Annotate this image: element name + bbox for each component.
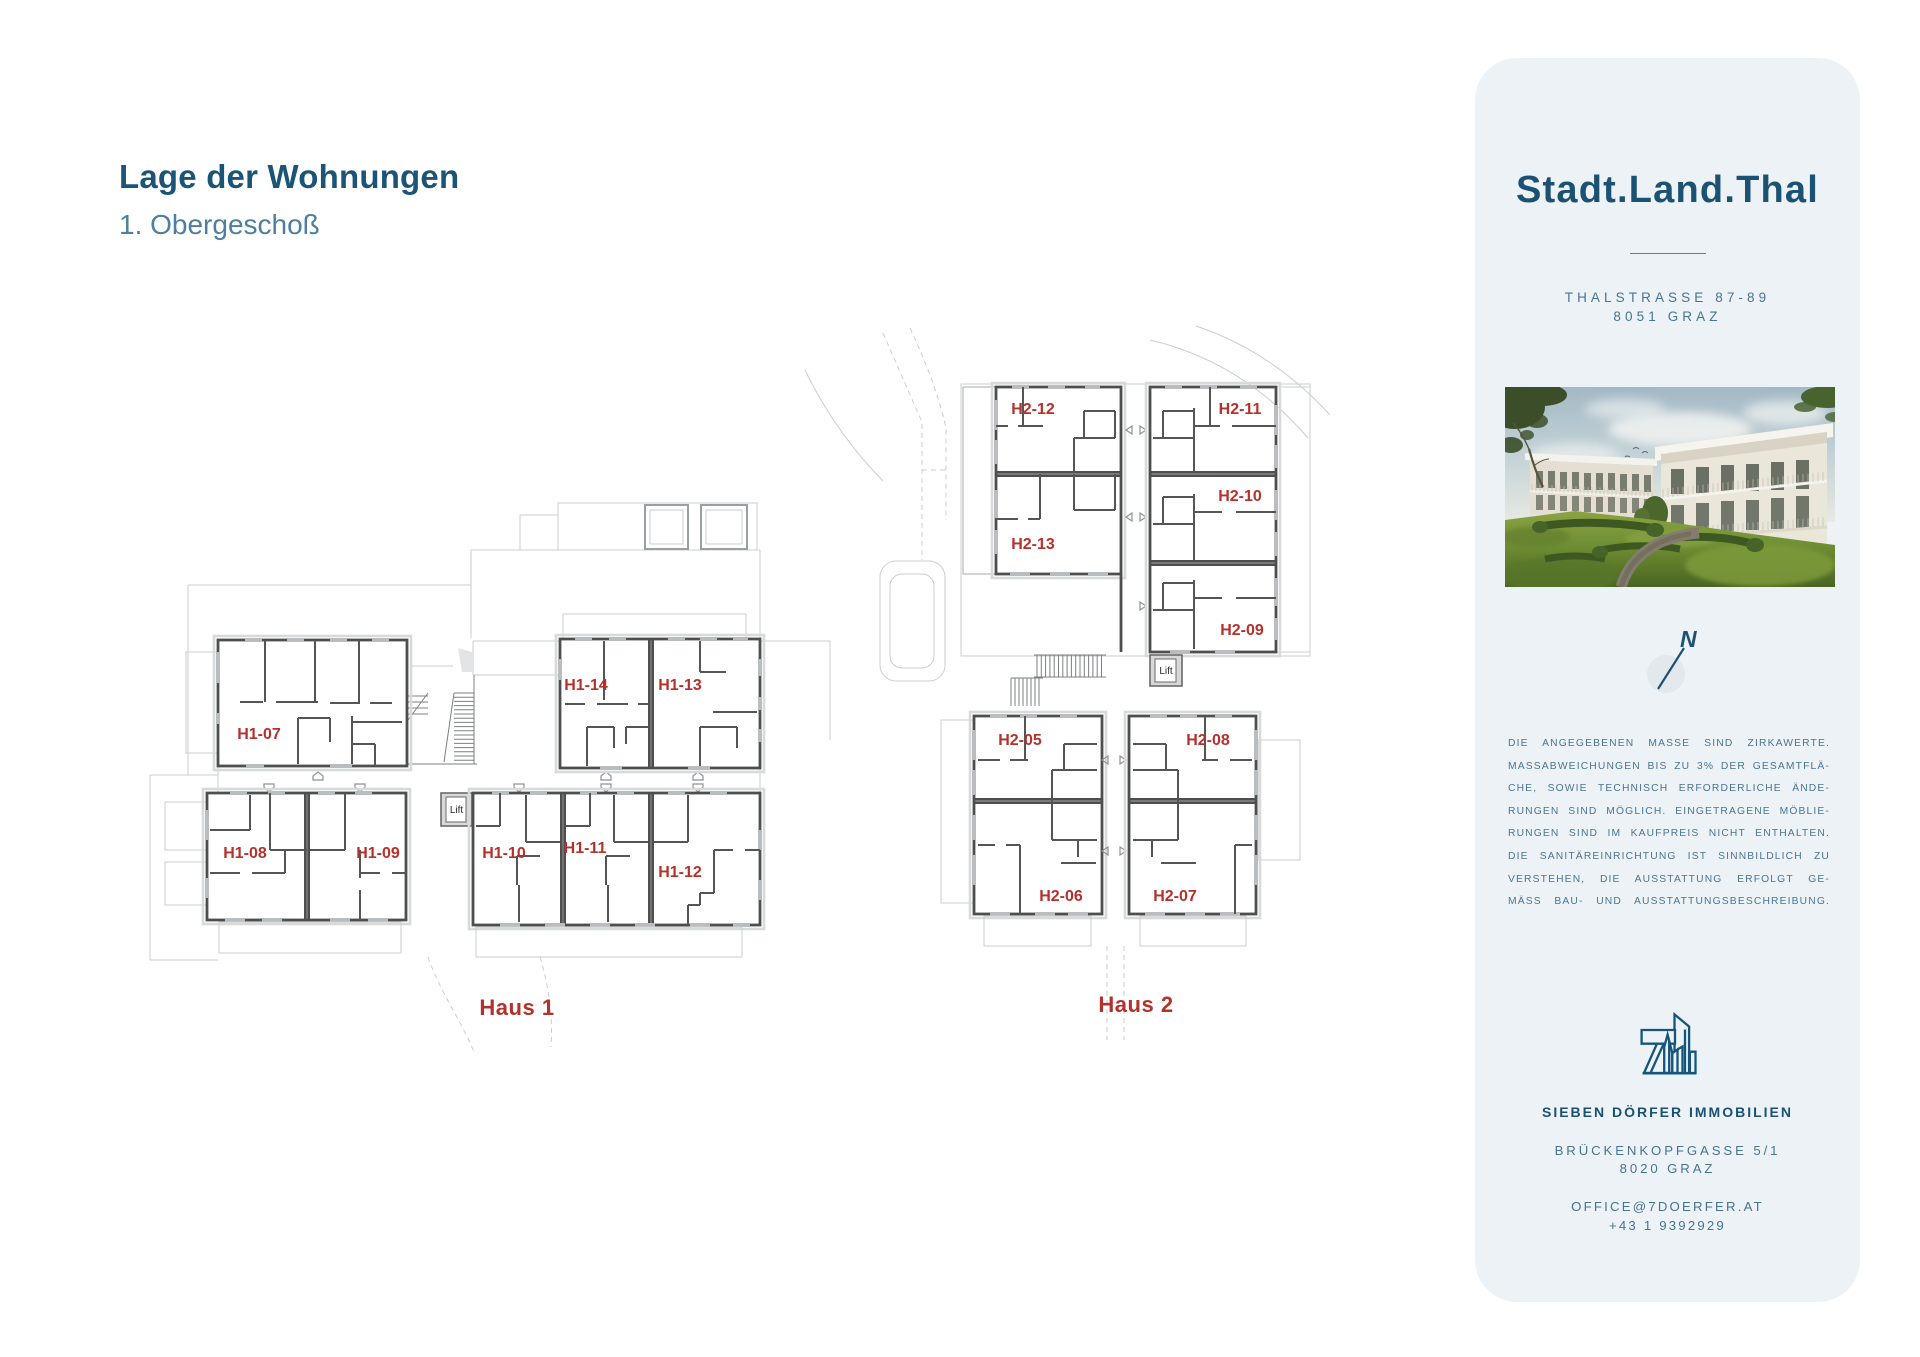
- svg-text:H2-09: H2-09: [1220, 622, 1264, 639]
- svg-text:H2-11: H2-11: [1219, 401, 1262, 418]
- svg-text:H2-08: H2-08: [1186, 732, 1230, 749]
- svg-text:H1-10: H1-10: [482, 845, 526, 862]
- svg-text:H1-14: H1-14: [564, 677, 608, 694]
- svg-text:H2-05: H2-05: [998, 732, 1042, 749]
- svg-text:H2-13: H2-13: [1011, 536, 1055, 553]
- svg-text:Lift: Lift: [1159, 666, 1173, 677]
- svg-text:H2-06: H2-06: [1039, 888, 1083, 905]
- svg-text:H1-08: H1-08: [223, 845, 267, 862]
- svg-text:H2-10: H2-10: [1218, 488, 1262, 505]
- svg-text:H1-13: H1-13: [658, 677, 702, 694]
- svg-text:H2-12: H2-12: [1011, 401, 1055, 418]
- svg-text:H2-07: H2-07: [1153, 888, 1197, 905]
- svg-text:N: N: [1680, 626, 1697, 652]
- svg-text:H1-12: H1-12: [658, 864, 702, 881]
- svg-text:H1-11: H1-11: [564, 840, 607, 857]
- svg-text:Lift: Lift: [450, 805, 464, 816]
- svg-text:Haus 2: Haus 2: [1098, 992, 1173, 1017]
- svg-text:H1-09: H1-09: [356, 845, 400, 862]
- svg-text:H1-07: H1-07: [237, 726, 281, 743]
- svg-text:Haus 1: Haus 1: [479, 995, 554, 1020]
